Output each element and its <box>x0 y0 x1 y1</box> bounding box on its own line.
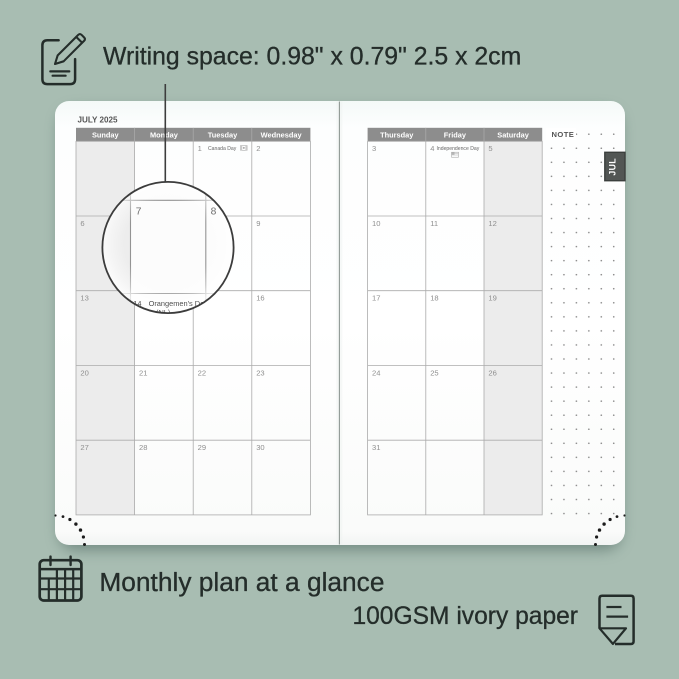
svg-text:Saturday: Saturday <box>497 131 530 140</box>
svg-text:Monday: Monday <box>150 131 179 140</box>
svg-text:26: 26 <box>488 368 496 377</box>
svg-text:13: 13 <box>80 294 88 303</box>
svg-text:Wednesday: Wednesday <box>261 131 303 140</box>
svg-text:Monthly plan at a glance: Monthly plan at a glance <box>99 567 384 597</box>
svg-text:NOTE: NOTE <box>552 130 575 139</box>
svg-text:19: 19 <box>488 294 496 303</box>
svg-text:16: 16 <box>256 294 264 303</box>
svg-text:Writing space: 0.98" x 0.79" 2: Writing space: 0.98" x 0.79" 2.5 x 2cm <box>103 43 521 70</box>
svg-text:JULY 2025: JULY 2025 <box>78 116 119 125</box>
svg-text:Sunday: Sunday <box>92 131 120 140</box>
svg-text:23: 23 <box>256 368 264 377</box>
svg-text:Canada Day: Canada Day <box>208 146 237 152</box>
svg-text:25: 25 <box>430 368 438 377</box>
svg-text:29: 29 <box>198 443 206 452</box>
svg-text:18: 18 <box>430 294 438 303</box>
svg-text:12: 12 <box>488 219 496 228</box>
svg-text:Thursday: Thursday <box>380 131 414 140</box>
svg-text:21: 21 <box>139 368 147 377</box>
svg-text:30: 30 <box>256 443 264 452</box>
svg-text:31: 31 <box>372 443 380 452</box>
svg-text:Tuesday: Tuesday <box>208 131 238 140</box>
svg-text:4: 4 <box>430 144 434 153</box>
svg-text:JUL: JUL <box>607 158 617 176</box>
svg-text:28: 28 <box>139 443 147 452</box>
svg-text:Friday: Friday <box>444 131 467 140</box>
svg-text:Independence Day: Independence Day <box>437 146 480 152</box>
svg-text:3: 3 <box>372 144 376 153</box>
svg-text:1: 1 <box>198 144 202 153</box>
svg-text:100GSM ivory paper: 100GSM ivory paper <box>352 603 578 630</box>
svg-text:20: 20 <box>80 368 88 377</box>
svg-text:17: 17 <box>372 294 380 303</box>
svg-text:2: 2 <box>256 144 260 153</box>
svg-text:9: 9 <box>256 219 260 228</box>
svg-text:22: 22 <box>198 368 206 377</box>
svg-text:5: 5 <box>488 144 492 153</box>
svg-text:11: 11 <box>430 219 438 228</box>
svg-text:6: 6 <box>80 219 84 228</box>
svg-text:27: 27 <box>80 443 88 452</box>
svg-text:7: 7 <box>136 206 142 217</box>
svg-text:8: 8 <box>211 207 217 218</box>
svg-text:10: 10 <box>372 219 380 228</box>
svg-text:24: 24 <box>372 368 380 377</box>
